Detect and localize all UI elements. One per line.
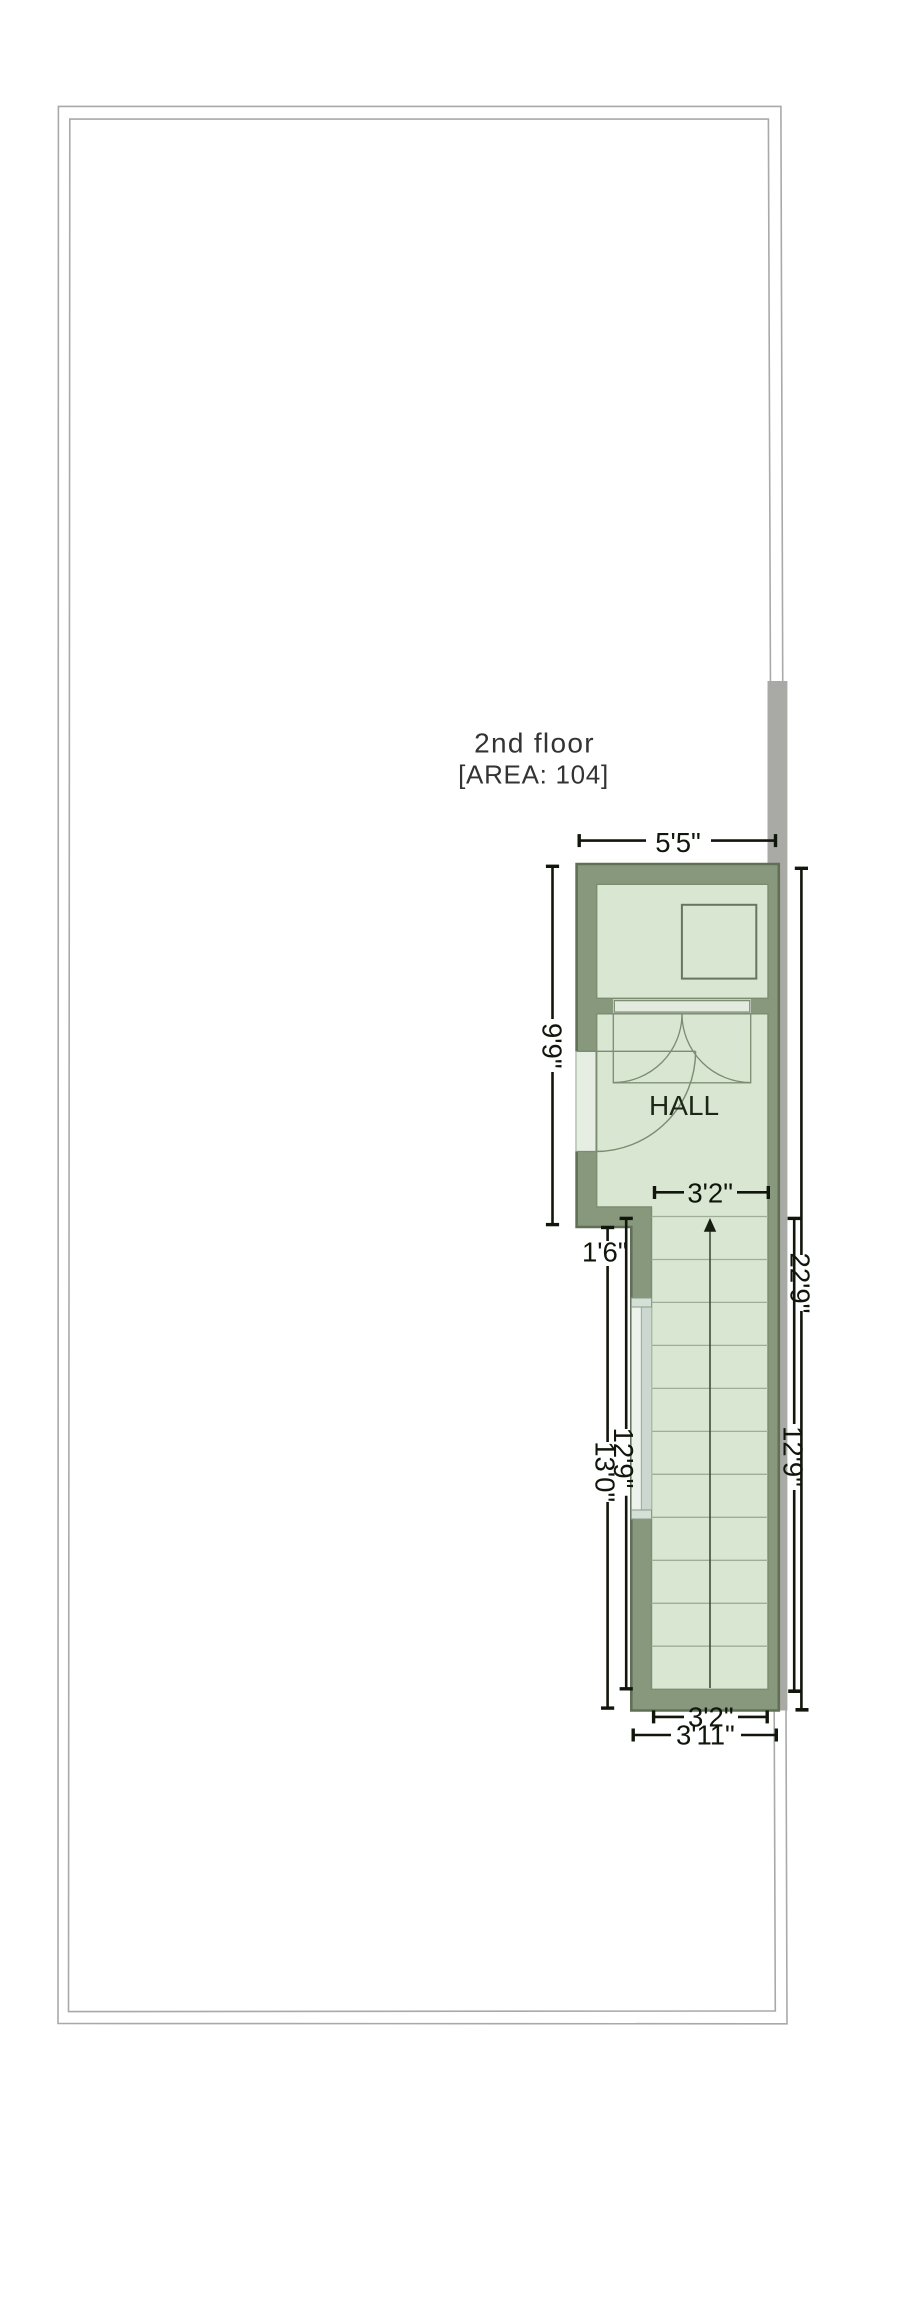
svg-text:9'9": 9'9" bbox=[536, 1023, 567, 1069]
svg-text:1'6": 1'6" bbox=[582, 1237, 628, 1268]
svg-text:5'5": 5'5" bbox=[655, 827, 701, 858]
svg-text:13'0": 13'0" bbox=[589, 1441, 620, 1502]
svg-text:22'9": 22'9" bbox=[785, 1253, 816, 1314]
svg-text:3'2": 3'2" bbox=[687, 1177, 733, 1208]
svg-text:[AREA: 104]: [AREA: 104] bbox=[458, 759, 609, 789]
svg-text:HALL: HALL bbox=[649, 1090, 719, 1121]
svg-text:12'9": 12'9" bbox=[778, 1426, 809, 1487]
svg-text:2nd floor: 2nd floor bbox=[474, 728, 595, 759]
svg-text:3'11": 3'11" bbox=[676, 1719, 735, 1750]
